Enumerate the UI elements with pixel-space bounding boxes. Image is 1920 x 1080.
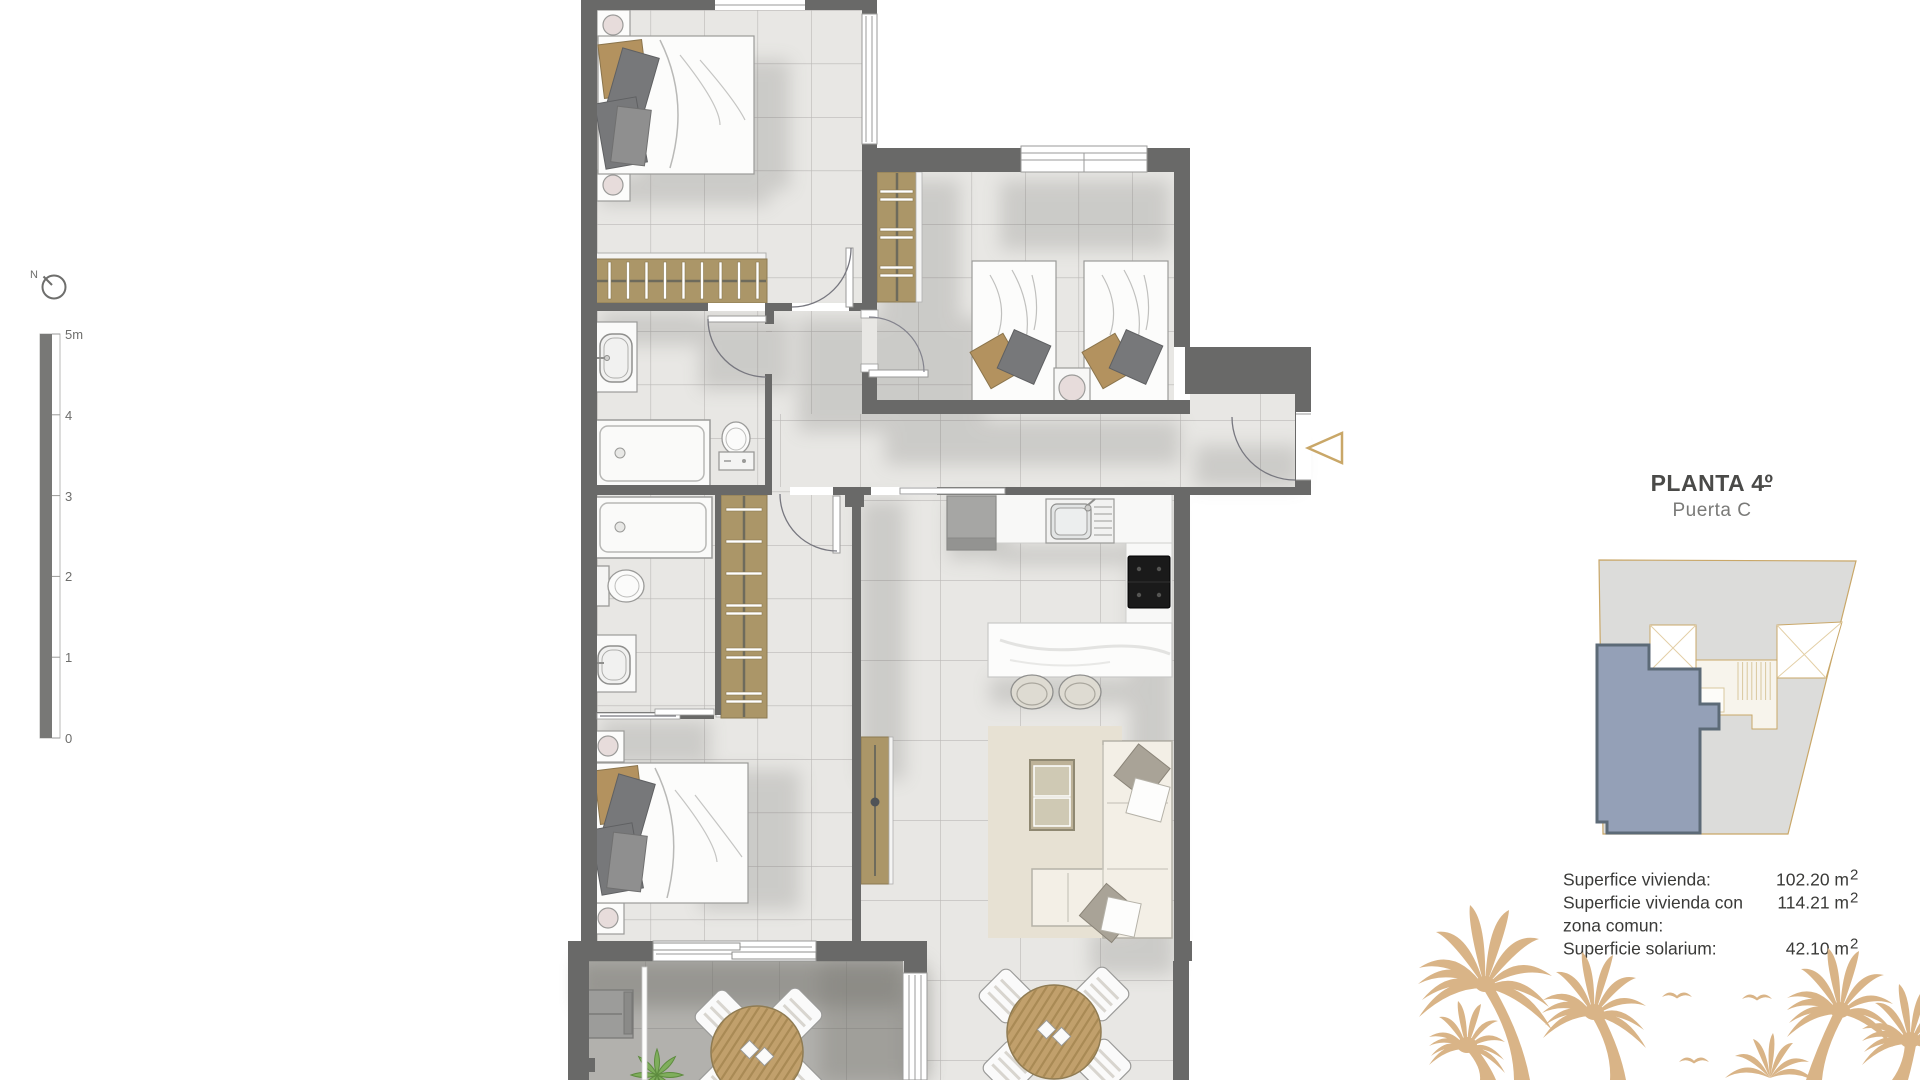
- svg-text:0: 0: [65, 731, 72, 746]
- svg-text:1: 1: [65, 650, 72, 665]
- svg-text:3: 3: [65, 489, 72, 504]
- svg-text:Superfice vivienda:: Superfice vivienda:: [1563, 870, 1711, 890]
- svg-text:2: 2: [65, 569, 72, 584]
- svg-text:zona comun:: zona comun:: [1563, 915, 1663, 935]
- svg-text:4: 4: [65, 408, 72, 423]
- svg-text:102.20 m: 102.20 m: [1776, 870, 1849, 890]
- svg-text:Superficie solarium:: Superficie solarium:: [1563, 938, 1717, 958]
- svg-text:42.10 m: 42.10 m: [1786, 938, 1849, 958]
- svg-text:Superficie vivienda con: Superficie vivienda con: [1563, 893, 1743, 913]
- svg-text:Puerta C: Puerta C: [1673, 500, 1752, 521]
- svg-text:2: 2: [1850, 935, 1858, 952]
- svg-text:2: 2: [1850, 867, 1858, 884]
- svg-text:PLANTA 4º: PLANTA 4º: [1651, 470, 1774, 496]
- svg-text:5m: 5m: [65, 327, 83, 342]
- svg-text:114.21 m: 114.21 m: [1777, 893, 1849, 913]
- svg-text:2: 2: [1850, 890, 1858, 907]
- svg-text:N: N: [30, 269, 38, 281]
